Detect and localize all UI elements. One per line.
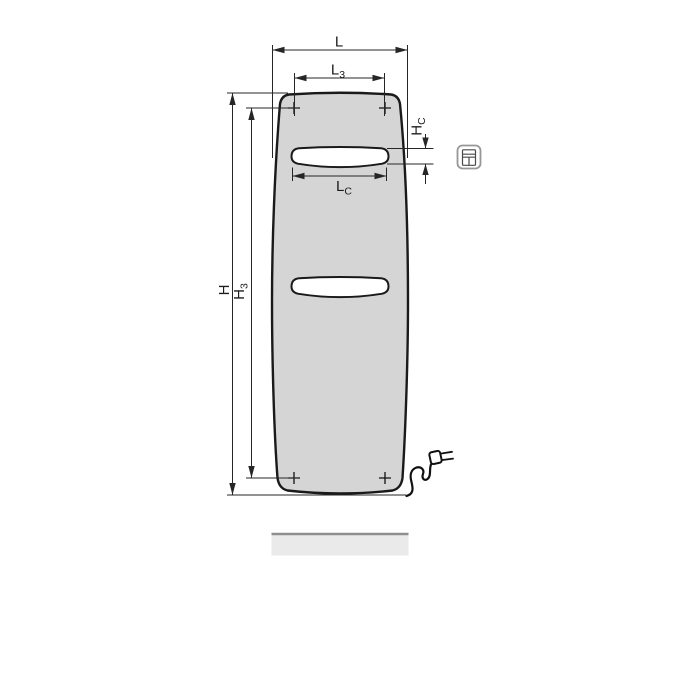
radiator-front-with-towel-slot-icon (458, 146, 481, 169)
arrow-left-icon (273, 47, 285, 53)
power-connection (407, 450, 454, 496)
arrow-left-icon (295, 75, 307, 81)
arrow-up-icon (422, 164, 428, 175)
diagram-canvas: L L3 H H3 HC LC (0, 0, 700, 700)
arrow-right-icon (396, 47, 408, 53)
dim-label-HC: HC (409, 117, 429, 136)
power-cord (407, 465, 432, 497)
plug-pins-icon (442, 452, 454, 460)
arrow-down-icon (422, 138, 428, 149)
towel-slot-top (292, 147, 389, 167)
radiator-dimension-drawing: L L3 H H3 HC LC (0, 0, 700, 700)
floor-shadow-bar (272, 534, 409, 556)
power-plug (429, 450, 442, 464)
towel-slot-middle (292, 277, 389, 297)
dim-label-L3: L3 (331, 62, 345, 82)
floor-fill (272, 535, 409, 556)
arrow-down-icon (248, 466, 254, 478)
arrow-right-icon (373, 75, 385, 81)
dim-label-H3: H3 (231, 283, 251, 300)
arrow-down-icon (229, 483, 235, 495)
dim-label-L: L (335, 34, 343, 51)
arrow-up-icon (229, 93, 235, 105)
arrow-up-icon (248, 108, 254, 120)
